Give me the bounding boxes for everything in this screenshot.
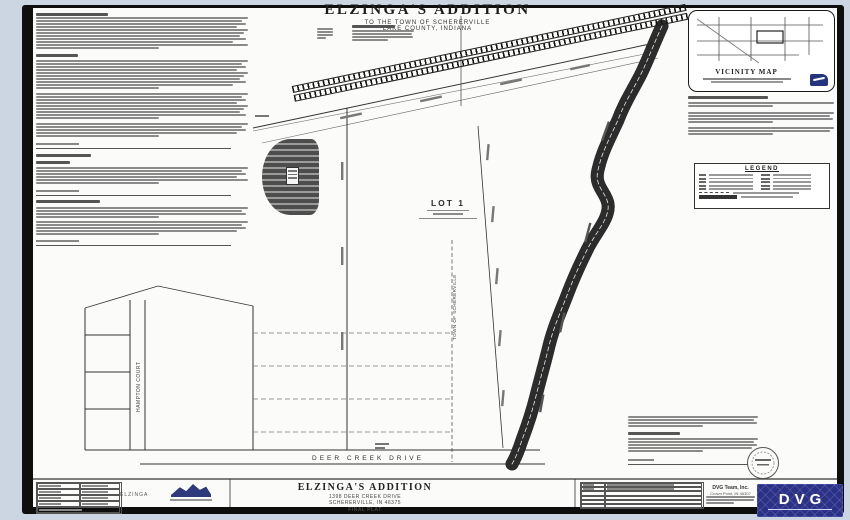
- vicinity-note-line-2: [711, 81, 783, 83]
- greek-line: [36, 216, 159, 218]
- legend-row: [699, 188, 825, 190]
- project-code-label: ELZINGA: [120, 492, 148, 498]
- legend-entries: [699, 174, 825, 199]
- greek-line: [688, 121, 773, 123]
- greek-line: [688, 118, 833, 120]
- greek-paragraph: [36, 17, 248, 49]
- greek-line: [36, 69, 237, 71]
- greek-heading: [688, 96, 768, 99]
- greek-paragraph: [317, 28, 333, 39]
- lot-area-text: [427, 210, 469, 212]
- legend-entry: [761, 178, 770, 180]
- legend-solid-sample: [699, 195, 825, 199]
- greek-paragraph: [352, 30, 414, 41]
- track-label-block: [317, 28, 333, 40]
- greek-line: [36, 78, 240, 80]
- greek-line: [36, 20, 242, 22]
- greek-line: [352, 33, 412, 35]
- greek-line: [36, 96, 242, 98]
- greek-line: [36, 170, 242, 172]
- greek-paragraph: [36, 221, 248, 235]
- greek-heading: [36, 13, 108, 16]
- greek-heading: [36, 54, 78, 57]
- legend-row: [699, 174, 825, 176]
- table-cell: [605, 504, 702, 508]
- greek-line: [688, 127, 834, 129]
- greek-line: [36, 84, 233, 86]
- table-row: [581, 504, 703, 508]
- firm-emblem: [168, 484, 214, 504]
- greek-line: [628, 416, 758, 418]
- greek-line: [688, 130, 830, 132]
- greek-line: [36, 93, 248, 95]
- dvg-logo-text: DVG: [774, 492, 827, 507]
- legend-row: [699, 185, 825, 187]
- greek-line: [36, 47, 159, 49]
- greek-line: [36, 72, 248, 74]
- signature-line: [36, 238, 231, 246]
- legend-entry: [761, 185, 770, 187]
- greek-line: [36, 179, 248, 181]
- greek-line: [628, 444, 757, 446]
- county-notes-block: [688, 96, 834, 136]
- greek-heading: [36, 161, 70, 164]
- greek-line: [688, 112, 834, 114]
- greek-line: [36, 99, 246, 101]
- greek-line: [628, 438, 758, 440]
- greek-line: [36, 105, 248, 107]
- greek-paragraph: [36, 207, 248, 218]
- greek-line: [688, 115, 830, 117]
- legend-entry: [699, 174, 706, 176]
- greek-line: [688, 105, 773, 107]
- legend-row: [699, 178, 825, 180]
- dvg-logo: DVG: [757, 484, 843, 517]
- greek-paragraph: [36, 167, 248, 184]
- greek-paragraph: [688, 102, 834, 107]
- lot-note-text: [419, 218, 477, 220]
- dvg-logo-underline: [768, 509, 832, 510]
- greek-line: [36, 126, 242, 128]
- legend-entry: [761, 188, 770, 190]
- greek-paragraph: [36, 123, 248, 137]
- greek-line: [36, 227, 246, 229]
- revisions-table: [580, 482, 704, 509]
- greek-heading: [628, 432, 680, 435]
- greek-line: [36, 230, 237, 232]
- emblem-mountain-icon: [171, 484, 211, 497]
- greek-line: [36, 111, 240, 113]
- firm-emblem-icon: [810, 74, 828, 86]
- legend-row: [699, 181, 825, 183]
- title-block-center: ELZINGA'S ADDITION 1398 DEER CREEK DRIVE…: [255, 482, 475, 513]
- greek-line: [36, 23, 246, 25]
- greek-line: [36, 60, 248, 62]
- legend-entry: [699, 188, 706, 190]
- plat-title: ELZINGA'S ADDITION: [255, 2, 600, 19]
- greek-paragraph: [36, 60, 248, 89]
- title-block-address: 1398 DEER CREEK DRIVE: [255, 494, 475, 500]
- legend-entry: [709, 174, 753, 176]
- legend-entry: [699, 181, 706, 183]
- legend-entry: [709, 185, 753, 187]
- lot-1-label: LOT 1: [398, 198, 498, 208]
- firm-address-block: DVG Team, Inc. Crown Point, IN 46307: [706, 485, 755, 505]
- table-row: [37, 507, 121, 513]
- plat-subtitle-2: LAKE COUNTY, INDIANA: [255, 26, 600, 32]
- legend-entry: [709, 178, 753, 180]
- title-block-city: SCHERERVILLE, IN 46375: [255, 500, 475, 506]
- legend-entry: [699, 178, 706, 180]
- railroad-note-block: [352, 25, 414, 42]
- greek-line: [36, 87, 159, 89]
- sheet-title-block: ELZINGA'S ADDITION TO THE TOWN OF SCHERE…: [255, 2, 600, 32]
- certificates-text-column: [36, 13, 248, 305]
- greek-line: [317, 34, 333, 36]
- signature-line: [36, 188, 231, 196]
- greek-line: [628, 441, 754, 443]
- greek-paragraph: [36, 93, 248, 119]
- greek-line: [628, 422, 757, 424]
- legend-entry: [773, 178, 811, 180]
- scanned-plat-viewer: DEER CREEK DRIVE HAMPTON COURT TOWN OF S…: [0, 0, 850, 520]
- greek-line: [36, 224, 242, 226]
- greek-line: [36, 135, 159, 137]
- drawing-info-table: [36, 482, 122, 514]
- greek-line: [36, 29, 248, 31]
- greek-paragraph: [628, 438, 758, 452]
- pond-label-tag: [286, 167, 299, 185]
- greek-line: [36, 210, 242, 212]
- greek-line: [36, 213, 246, 215]
- greek-line: [628, 425, 703, 427]
- greek-paragraph: [706, 496, 755, 504]
- greek-line: [36, 167, 248, 169]
- greek-paragraph: [628, 416, 758, 427]
- greek-heading: [352, 25, 395, 28]
- greek-paragraph: [688, 127, 834, 135]
- greek-line: [317, 37, 326, 39]
- greek-line: [36, 102, 237, 104]
- greek-line: [352, 39, 388, 41]
- greek-line: [36, 32, 244, 34]
- vicinity-note-line-1: [703, 78, 791, 80]
- lot-acreage-text: [433, 213, 463, 215]
- legend-entry: [773, 174, 811, 176]
- vicinity-map-box: VICINITY MAP: [688, 10, 835, 92]
- greek-line: [688, 133, 773, 135]
- lot-1-label-group: LOT 1: [398, 198, 498, 221]
- legend-entry: [773, 181, 811, 183]
- greek-line: [36, 66, 246, 68]
- greek-line: [317, 28, 333, 30]
- greek-line: [36, 44, 248, 46]
- greek-line: [36, 81, 246, 83]
- legend-dashed-sample: [699, 192, 825, 194]
- greek-line: [36, 173, 246, 175]
- greek-line: [36, 123, 248, 125]
- greek-line: [628, 447, 752, 449]
- greek-line: [36, 221, 248, 223]
- greek-line: [36, 207, 248, 209]
- greek-line: [688, 102, 834, 104]
- greek-line: [36, 114, 246, 116]
- table-cell: [581, 504, 605, 508]
- greek-line: [36, 233, 159, 235]
- greek-line: [628, 450, 703, 452]
- greek-line: [317, 31, 333, 33]
- firm-city: Crown Point, IN 46307: [708, 491, 752, 496]
- legend-title: LEGEND: [699, 166, 825, 172]
- greek-line: [36, 182, 159, 184]
- greek-line: [36, 108, 244, 110]
- legend-entry: [761, 181, 770, 183]
- legend-entry: [709, 188, 753, 190]
- recorder-notes-block: [628, 416, 758, 467]
- signature-line: [36, 141, 231, 149]
- title-block-name: ELZINGA'S ADDITION: [255, 482, 475, 493]
- firm-contact-lines: [706, 496, 755, 504]
- legend-entry: [773, 185, 811, 187]
- signature-line: [628, 457, 748, 465]
- greek-line: [36, 17, 248, 19]
- greek-line: [706, 496, 755, 498]
- greek-line: [36, 117, 159, 119]
- greek-line: [352, 36, 413, 38]
- vicinity-map-sketch: [689, 11, 831, 67]
- legend-entry: [709, 181, 753, 183]
- greek-heading: [36, 154, 91, 157]
- greek-heading: [36, 200, 100, 203]
- table-cell: [37, 507, 120, 513]
- greek-line: [36, 75, 244, 77]
- firm-name: DVG Team, Inc.: [706, 485, 755, 491]
- greek-line: [36, 38, 246, 40]
- legend-entry: [699, 185, 706, 187]
- greek-line: [352, 30, 414, 32]
- vicinity-map-caption: VICINITY MAP: [689, 68, 804, 76]
- greek-line: [36, 41, 233, 43]
- greek-line: [36, 63, 242, 65]
- greek-line: [36, 35, 240, 37]
- pond-hatched-area: [262, 139, 319, 215]
- emblem-caption-text: [170, 499, 212, 501]
- greek-line: [36, 176, 237, 178]
- greek-line: [36, 132, 237, 134]
- greek-paragraph: [688, 112, 834, 123]
- legend-entry: [761, 174, 770, 176]
- greek-line: [628, 419, 754, 421]
- title-block-sheet-type: FINAL PLAT: [255, 507, 475, 513]
- greek-line: [706, 499, 754, 501]
- legend-entry: [773, 188, 811, 190]
- greek-line: [36, 26, 237, 28]
- legend-box: LEGEND: [694, 163, 830, 209]
- greek-line: [706, 502, 734, 504]
- greek-line: [36, 129, 246, 131]
